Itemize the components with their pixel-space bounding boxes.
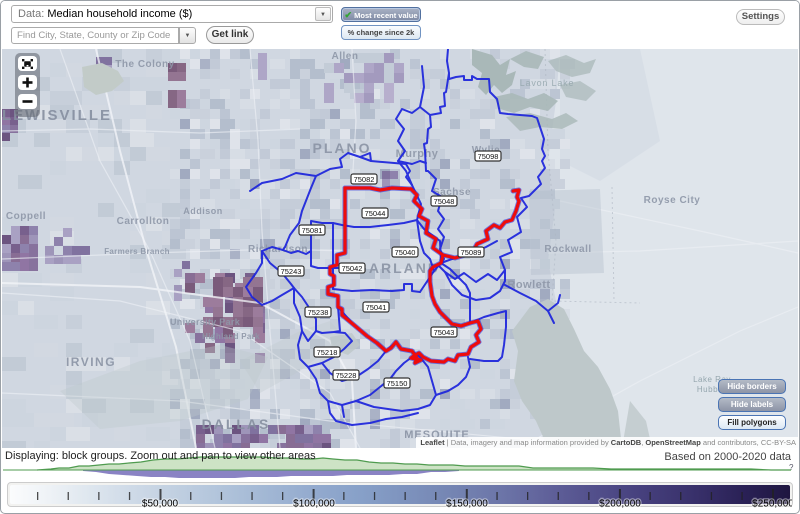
svg-text:University Park: University Park [170, 317, 241, 327]
svg-text:$150,000: $150,000 [446, 499, 488, 509]
svg-text:Highland Park: Highland Park [202, 332, 260, 341]
svg-text:75042: 75042 [342, 264, 363, 273]
svg-text:PLANO: PLANO [313, 140, 372, 156]
svg-text:75081: 75081 [302, 226, 323, 235]
svg-text:75098: 75098 [478, 152, 499, 161]
svg-text:75089: 75089 [461, 248, 482, 257]
svg-text:Royse City: Royse City [644, 195, 701, 206]
svg-text:The Colony: The Colony [115, 59, 174, 70]
svg-text:?: ? [789, 463, 794, 472]
svg-text:75041: 75041 [366, 303, 387, 312]
svg-text:Lavon Lake: Lavon Lake [520, 78, 575, 88]
svg-text:75043: 75043 [434, 328, 455, 337]
svg-text:75040: 75040 [395, 248, 416, 257]
svg-text:75238: 75238 [308, 308, 329, 317]
svg-text:$100,000: $100,000 [293, 499, 335, 509]
svg-text:75228: 75228 [336, 371, 357, 380]
svg-text:DALLAS: DALLAS [202, 416, 271, 432]
svg-text:Carrollton: Carrollton [117, 216, 170, 227]
svg-text:75218: 75218 [317, 348, 338, 357]
svg-text:IRVING: IRVING [66, 355, 116, 369]
svg-text:75048: 75048 [434, 197, 455, 206]
svg-text:75243: 75243 [281, 267, 302, 276]
svg-text:$200,000: $200,000 [599, 499, 641, 509]
svg-text:Farmers Branch: Farmers Branch [104, 247, 170, 256]
svg-text:$250,000: $250,000 [752, 499, 792, 509]
svg-text:$50,000: $50,000 [142, 499, 179, 509]
svg-text:75044: 75044 [365, 209, 386, 218]
svg-text:Allen: Allen [332, 51, 359, 62]
svg-text:75082: 75082 [354, 175, 375, 184]
svg-text:75150: 75150 [387, 379, 408, 388]
svg-text:Addison: Addison [183, 206, 223, 216]
svg-text:Coppell: Coppell [6, 211, 46, 222]
svg-text:GARLAND: GARLAND [356, 260, 440, 276]
svg-text:Rockwall: Rockwall [544, 244, 591, 255]
